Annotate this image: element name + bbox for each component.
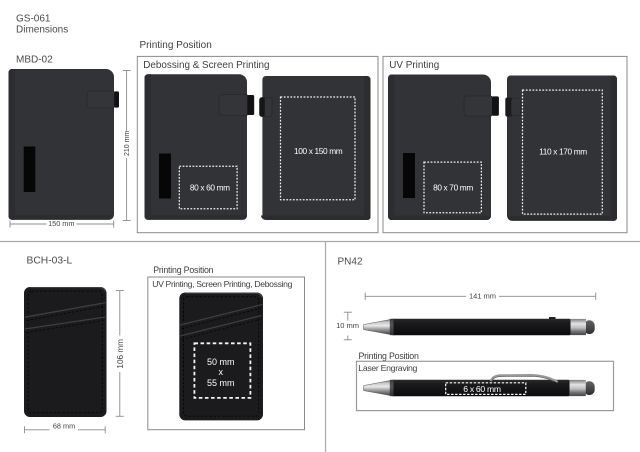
svg-text:GS-061: GS-061: [16, 13, 51, 24]
svg-text:210 mm: 210 mm: [124, 131, 131, 156]
svg-text:Printing Position: Printing Position: [359, 351, 419, 361]
svg-text:80 x 60 mm: 80 x 60 mm: [190, 183, 230, 193]
svg-text:110 x 170 mm: 110 x 170 mm: [539, 147, 587, 157]
svg-text:PN42: PN42: [338, 256, 363, 267]
svg-text:Dimensions: Dimensions: [16, 25, 68, 36]
svg-text:BCH-03-L: BCH-03-L: [27, 256, 73, 267]
svg-text:10 mm: 10 mm: [336, 321, 359, 330]
svg-text:68 mm: 68 mm: [53, 421, 75, 430]
svg-text:150 mm: 150 mm: [48, 219, 74, 228]
svg-text:6 x 60 mm: 6 x 60 mm: [463, 384, 501, 394]
svg-text:Printing Position: Printing Position: [140, 40, 212, 51]
svg-text:Debossing & Screen Printing: Debossing & Screen Printing: [143, 60, 269, 71]
svg-text:55 mm: 55 mm: [207, 378, 235, 388]
svg-text:80 x 70 mm: 80 x 70 mm: [433, 183, 473, 193]
svg-text:UV Printing: UV Printing: [389, 60, 439, 71]
svg-text:UV Printing, Screen Printing,: UV Printing, Screen Printing, Debossing: [152, 279, 292, 289]
svg-text:x: x: [218, 367, 223, 377]
svg-text:100 x 150 mm: 100 x 150 mm: [294, 146, 343, 156]
svg-text:50 mm: 50 mm: [207, 357, 235, 367]
svg-text:Laser Engraving: Laser Engraving: [358, 363, 417, 373]
svg-text:106 mm: 106 mm: [116, 339, 125, 369]
svg-text:Printing Position: Printing Position: [153, 265, 213, 275]
svg-text:141 mm: 141 mm: [469, 292, 496, 301]
svg-text:MBD-02: MBD-02: [16, 54, 53, 65]
